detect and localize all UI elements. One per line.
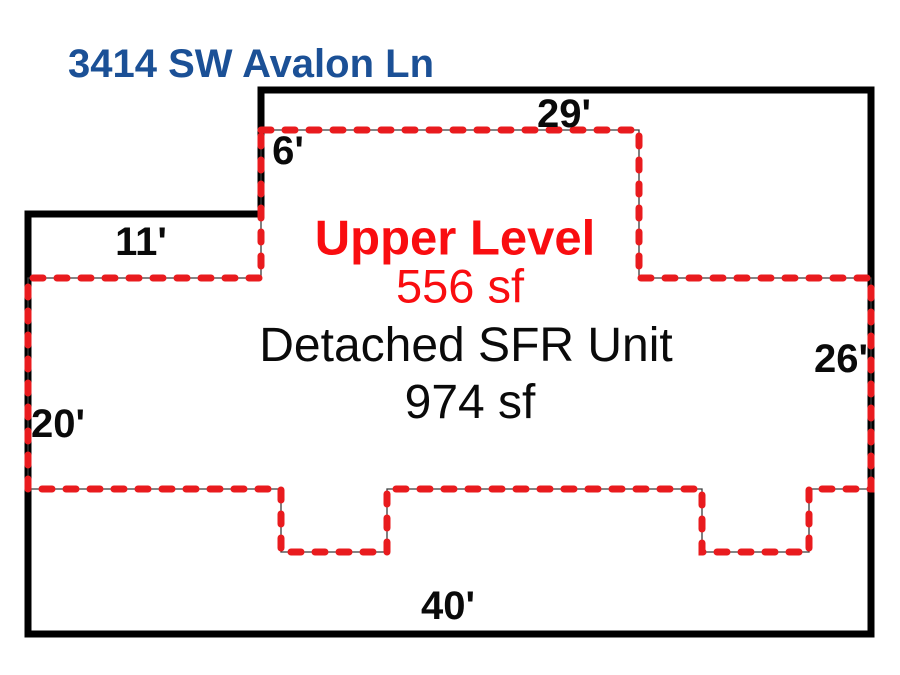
dimension-left-20ft: 20' xyxy=(31,404,85,444)
dimension-bottom-40ft: 40' xyxy=(421,586,475,626)
dimension-top-29ft: 29' xyxy=(537,94,591,134)
dimension-inset-6ft: 6' xyxy=(272,131,304,171)
unit-area-label: 974 sf xyxy=(405,379,536,427)
dimension-right-26ft: 26' xyxy=(814,339,868,379)
address-title: 3414 SW Avalon Ln xyxy=(68,44,434,84)
dimension-step-11ft: 11' xyxy=(115,222,167,262)
upper-level-label: Upper Level xyxy=(315,215,595,264)
upper-level-area: 556 sf xyxy=(396,263,524,310)
unit-name-label: Detached SFR Unit xyxy=(259,322,673,370)
floor-plan-page: 3414 SW Avalon Ln 29' 6' 11' 20' 26' 40'… xyxy=(0,0,900,675)
